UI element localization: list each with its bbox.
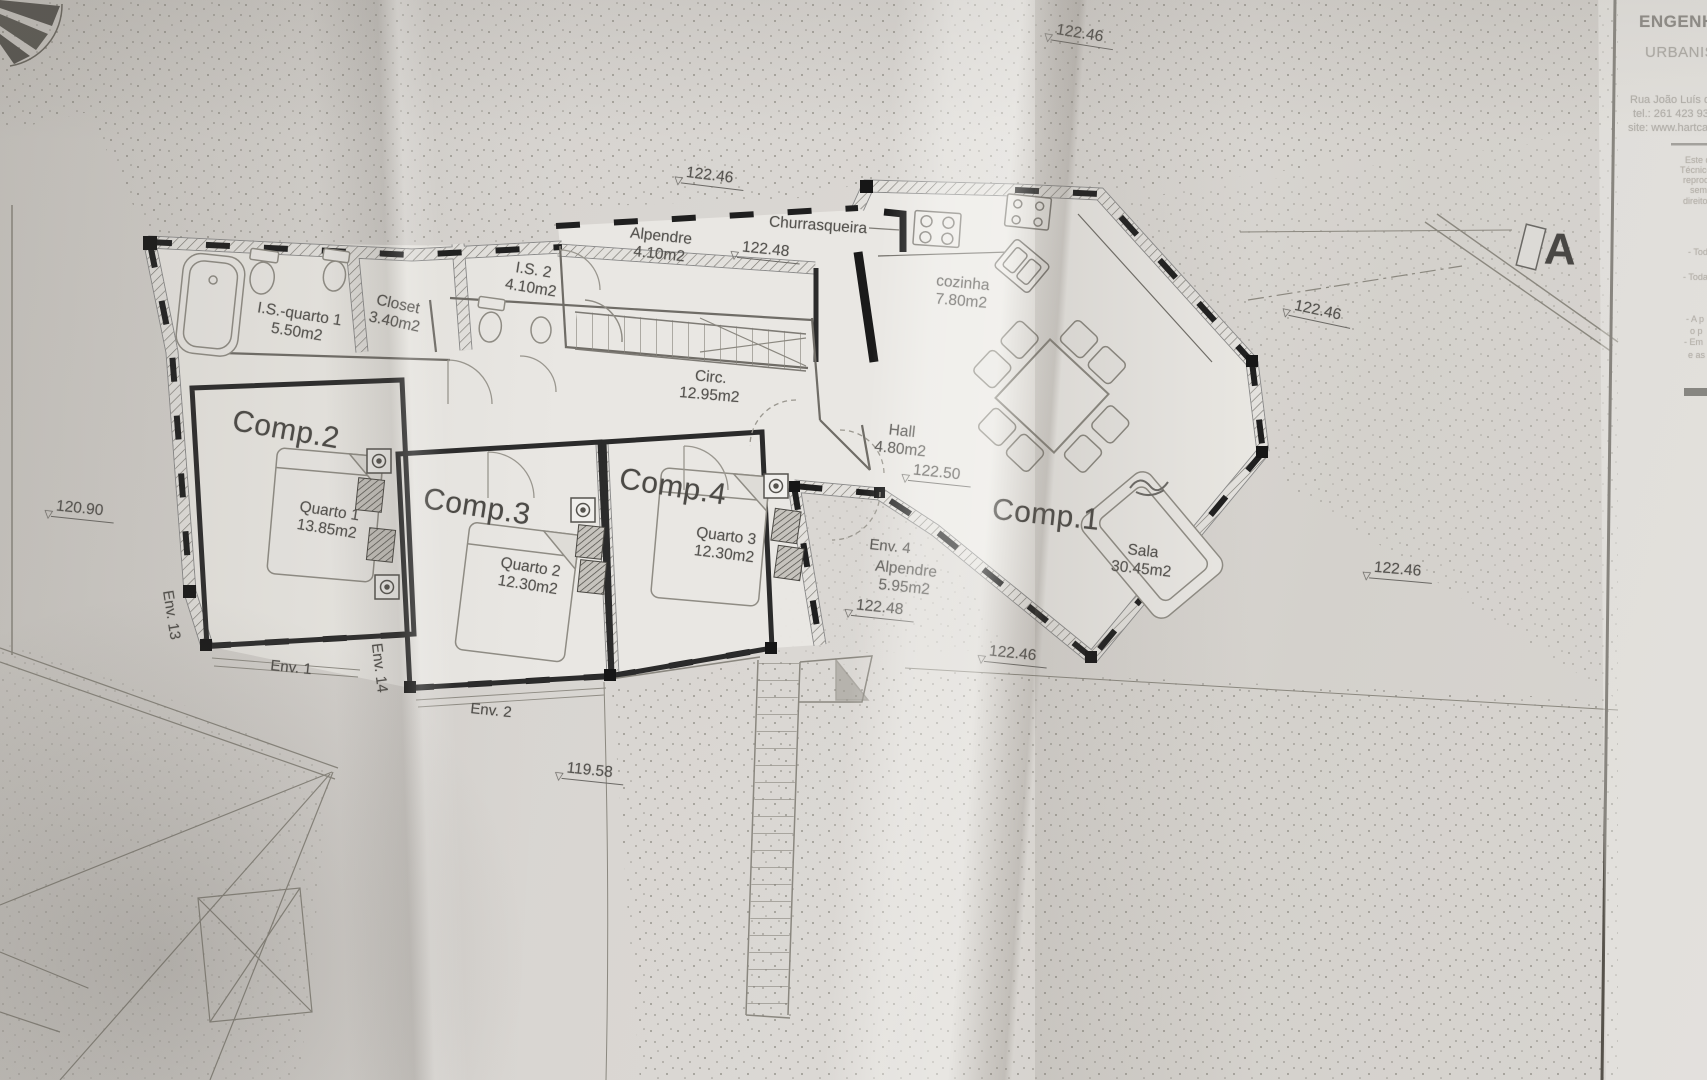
- title-block-company: ENGENHA: [1639, 12, 1707, 32]
- title-block-address: Rua João Luís d: [1630, 94, 1707, 106]
- bed-quarto2-icon: [455, 522, 580, 662]
- bed-quarto3-icon: [651, 468, 770, 607]
- title-block-website: site: www.hartca: [1628, 122, 1707, 134]
- title-block-disclaimer-line: direito: [1683, 196, 1707, 206]
- title-block-disclaimer-line: sem: [1690, 185, 1707, 195]
- title-block-note-line: e as: [1688, 350, 1705, 360]
- bed-quarto1-icon: [267, 448, 384, 583]
- title-block-department: URBANIS: [1645, 44, 1707, 61]
- title-block-note-line: - Toda: [1683, 272, 1707, 282]
- floorplan-photo: Comp.1Comp.2Comp.3Comp.4I.S.-quarto 15.5…: [0, 0, 1707, 1080]
- title-block-phone: tel.: 261 423 93: [1633, 108, 1707, 120]
- stove-icon: [913, 210, 961, 247]
- bathtub-icon: [174, 252, 246, 358]
- title-block-disclaimer-line: Técnico: [1680, 165, 1707, 175]
- title-block-note-line: - Tod: [1688, 247, 1707, 257]
- title-block-note-line: o p: [1690, 326, 1703, 336]
- title-block-disclaimer-line: Este d: [1685, 155, 1707, 165]
- floorplan-drawing: [0, 0, 1707, 1080]
- washbasin-icon: [531, 317, 551, 343]
- title-block-note-line: - A p: [1686, 314, 1704, 324]
- title-block-note-line: - Em: [1684, 337, 1703, 347]
- grill-icon: [1004, 194, 1051, 230]
- title-block-disclaimer-line: reprod: [1683, 175, 1707, 185]
